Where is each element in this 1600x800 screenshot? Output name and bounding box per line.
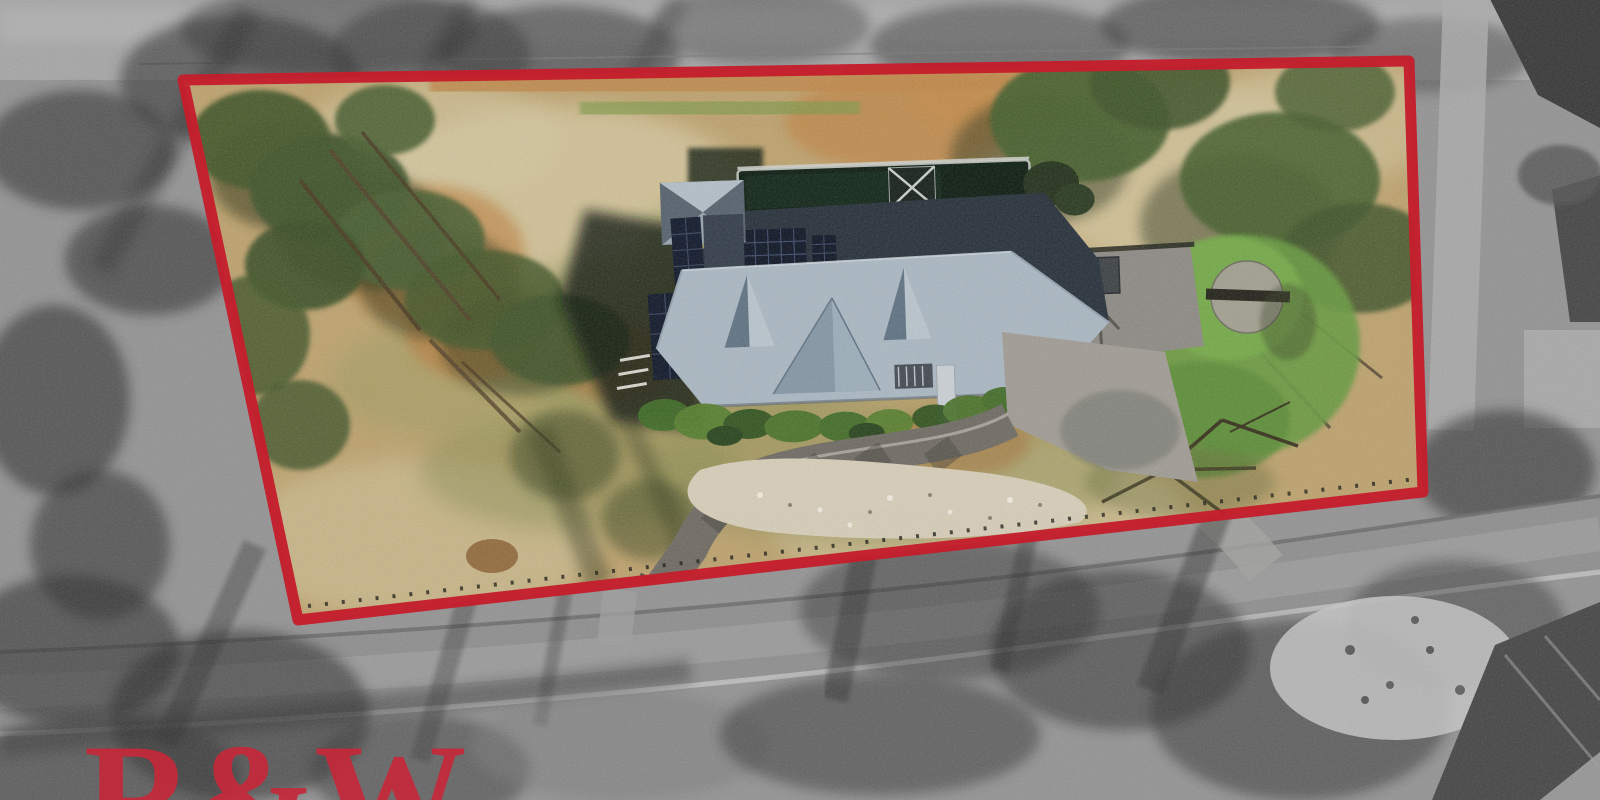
aerial-photo-canvas: R&W xyxy=(0,0,1600,800)
brand-watermark: R&W xyxy=(84,713,464,800)
aerial-property-photo: R&W xyxy=(0,0,1600,800)
